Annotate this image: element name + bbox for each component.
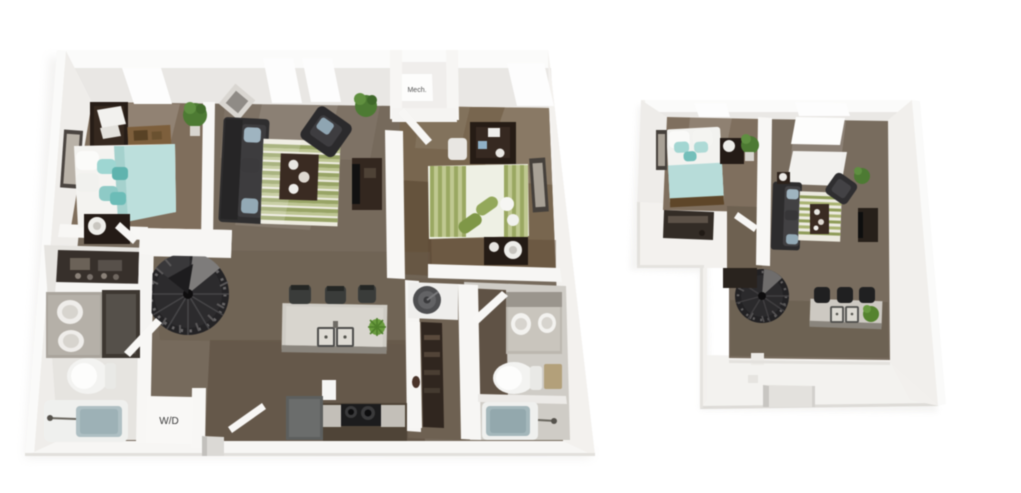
- svg-text:Mech.: Mech.: [407, 87, 426, 94]
- svg-text:W/D: W/D: [159, 416, 178, 427]
